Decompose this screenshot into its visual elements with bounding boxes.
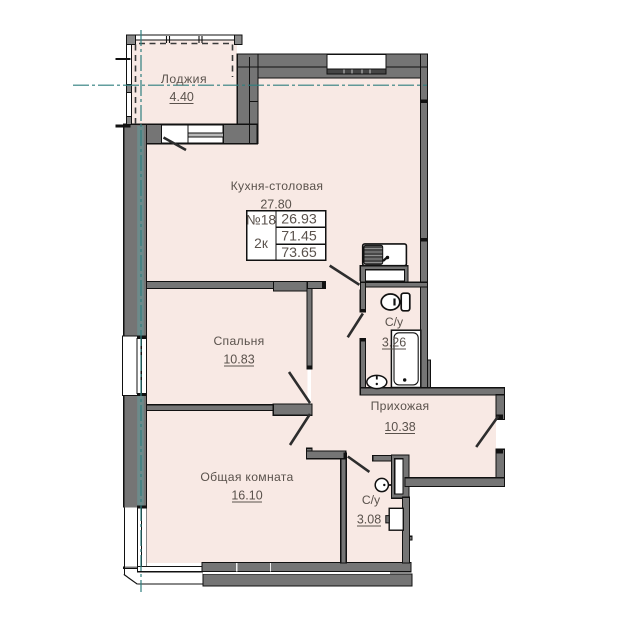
svg-text:26.93: 26.93 <box>281 212 317 228</box>
svg-text:Общая комната: Общая комната <box>200 470 293 484</box>
svg-text:3.08: 3.08 <box>357 513 381 527</box>
svg-text:С/у: С/у <box>362 493 381 507</box>
svg-text:73.65: 73.65 <box>281 245 317 261</box>
svg-text:3.26: 3.26 <box>382 336 406 350</box>
svg-text:Спальня: Спальня <box>213 334 264 348</box>
svg-text:№18: №18 <box>246 213 276 228</box>
svg-text:4.40: 4.40 <box>170 90 194 104</box>
svg-text:Лоджия: Лоджия <box>161 72 207 86</box>
svg-text:С/у: С/у <box>385 315 404 329</box>
svg-text:2к: 2к <box>254 236 269 251</box>
svg-text:16.10: 16.10 <box>231 489 262 503</box>
svg-text:10.83: 10.83 <box>223 353 254 367</box>
svg-text:Кухня-столовая: Кухня-столовая <box>231 179 324 193</box>
svg-text:71.45: 71.45 <box>281 229 317 245</box>
svg-text:Прихожая: Прихожая <box>371 399 430 413</box>
svg-text:10.38: 10.38 <box>384 420 415 434</box>
svg-text:27.80: 27.80 <box>260 198 291 212</box>
